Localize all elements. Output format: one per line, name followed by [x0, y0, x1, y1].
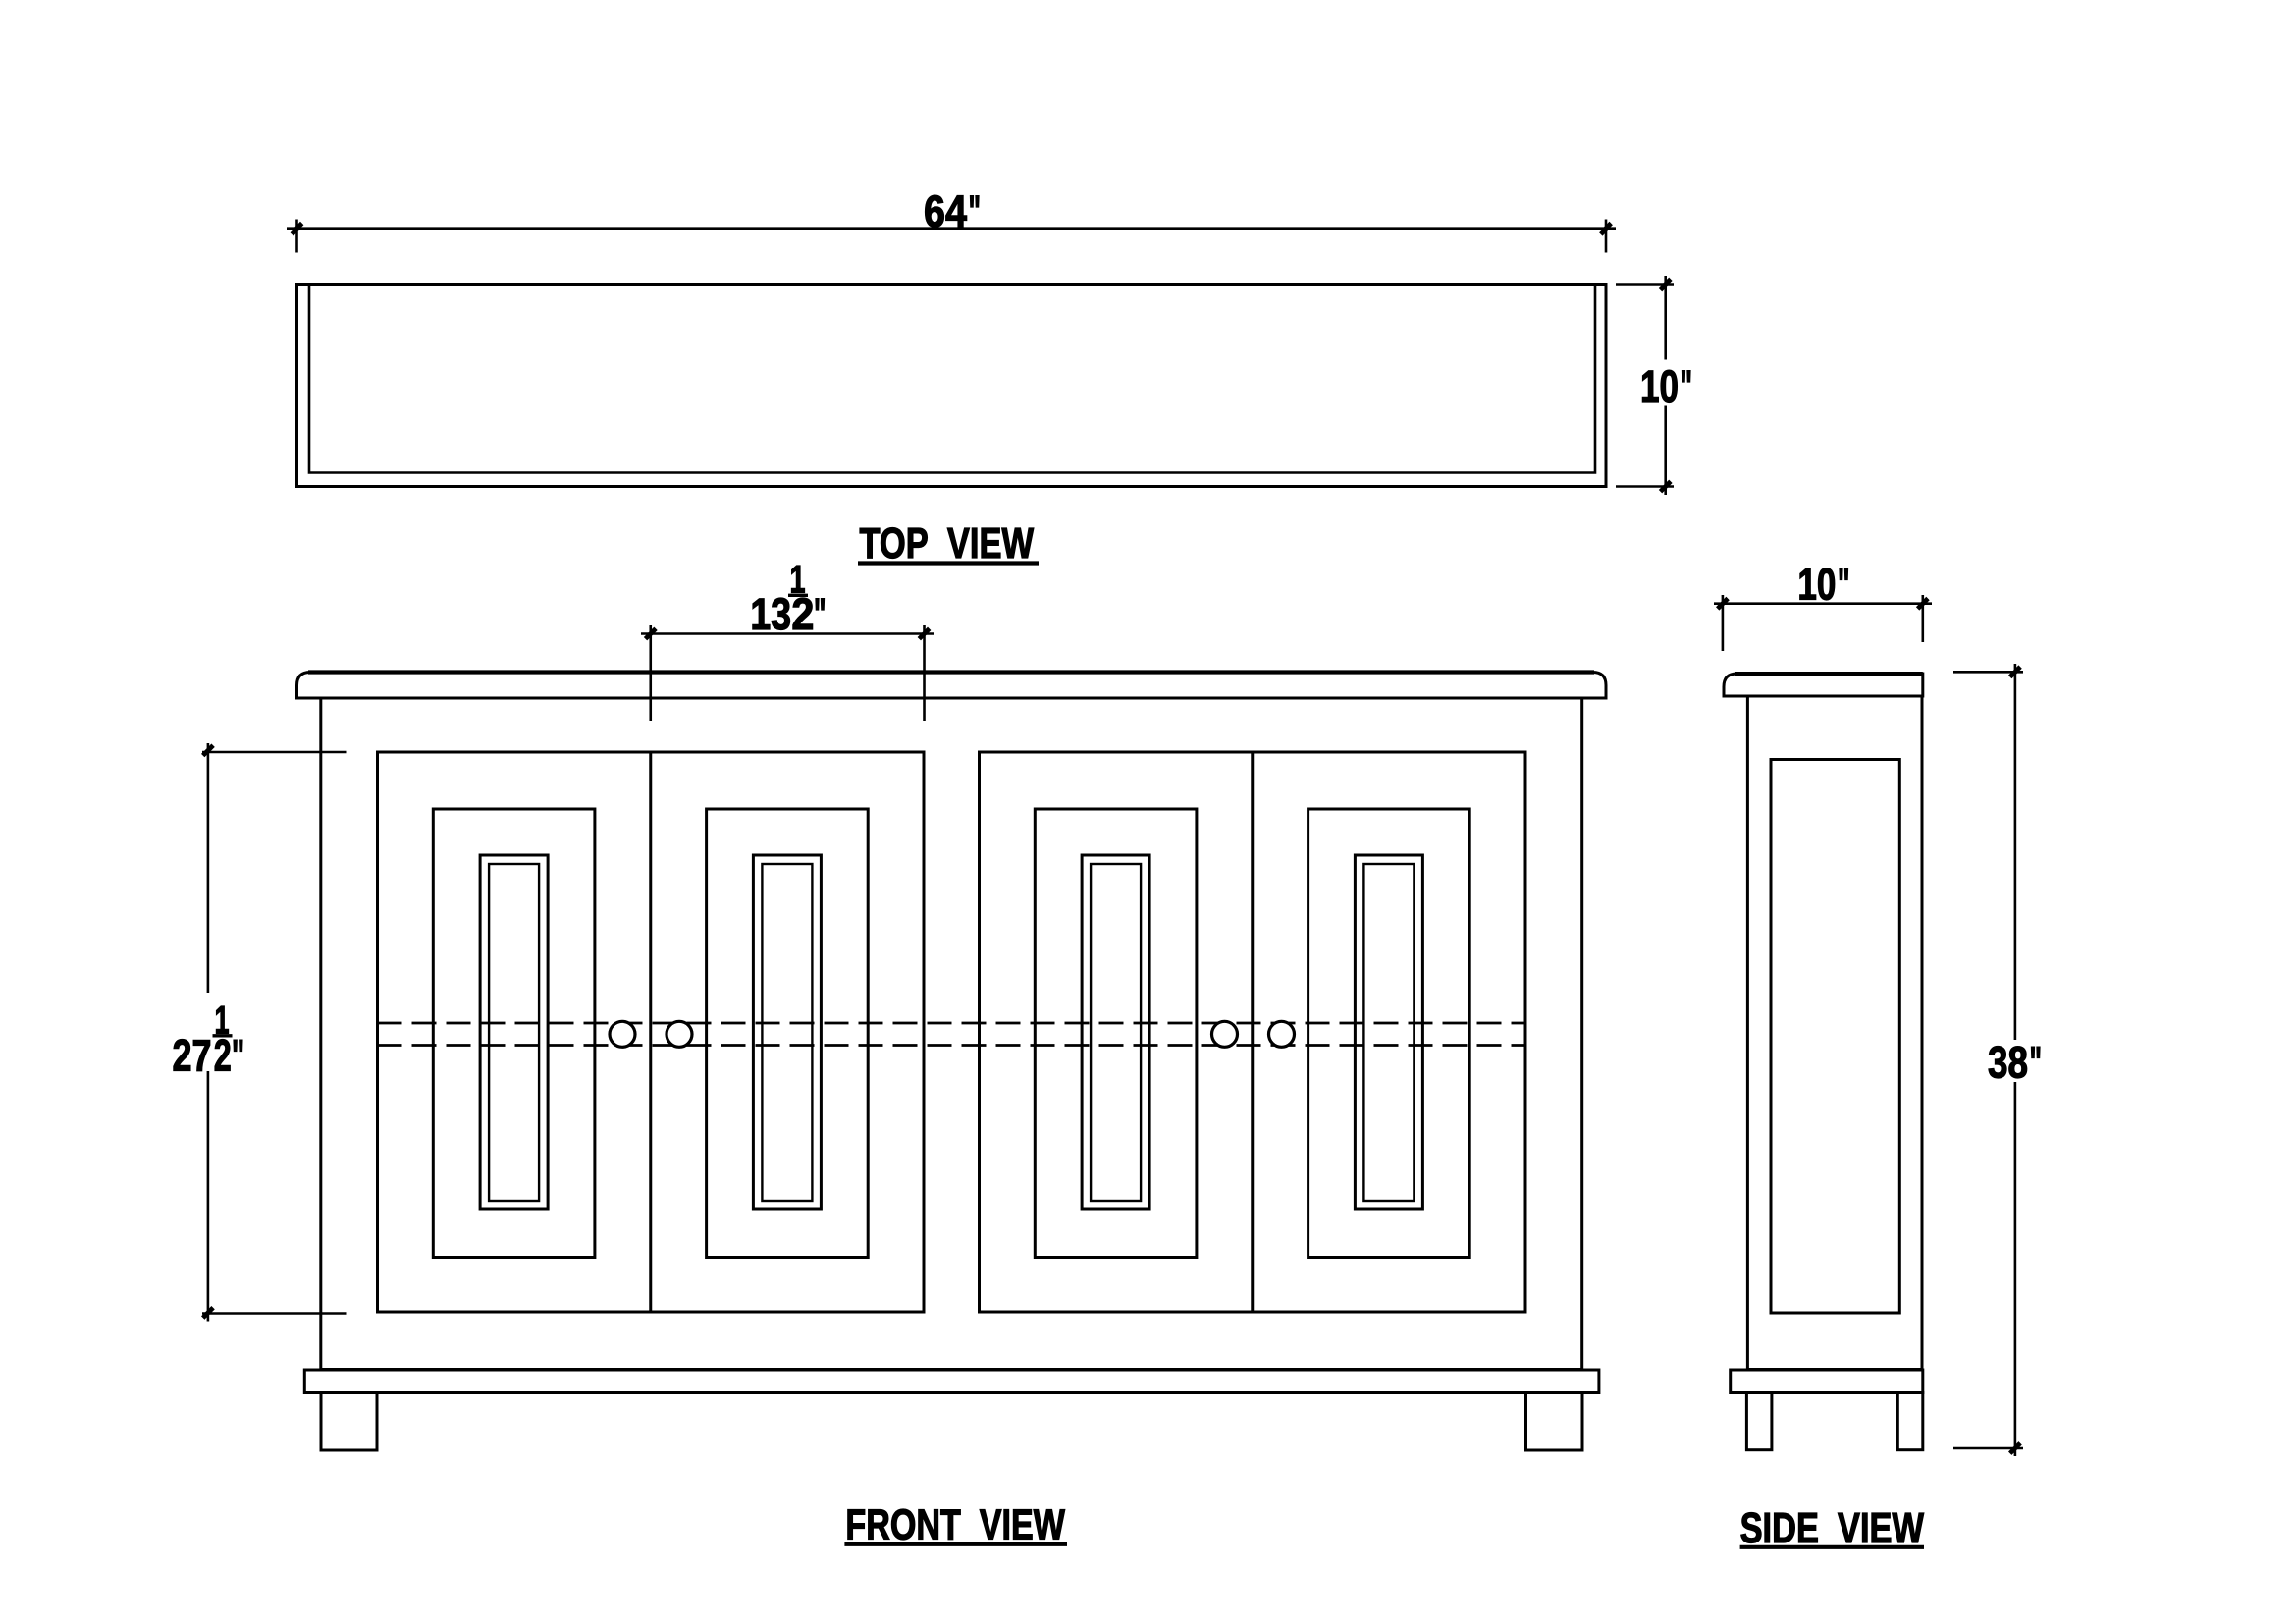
svg-text:10: 10 — [1640, 361, 1679, 411]
svg-text:": " — [814, 589, 827, 639]
svg-text:27: 27 — [173, 1031, 212, 1081]
svg-text:10: 10 — [1797, 560, 1836, 610]
svg-text:38: 38 — [1988, 1038, 2028, 1088]
svg-text:64: 64 — [924, 187, 967, 237]
svg-text:": " — [969, 187, 982, 237]
svg-text:": " — [1681, 361, 1693, 411]
svg-text:13: 13 — [750, 589, 791, 639]
svg-text:": " — [2030, 1038, 2043, 1088]
svg-text:FRONT VIEW: FRONT VIEW — [845, 1502, 1065, 1549]
svg-text:TOP VIEW: TOP VIEW — [860, 520, 1035, 568]
svg-text:": " — [232, 1031, 244, 1081]
svg-text:": " — [1838, 560, 1850, 610]
